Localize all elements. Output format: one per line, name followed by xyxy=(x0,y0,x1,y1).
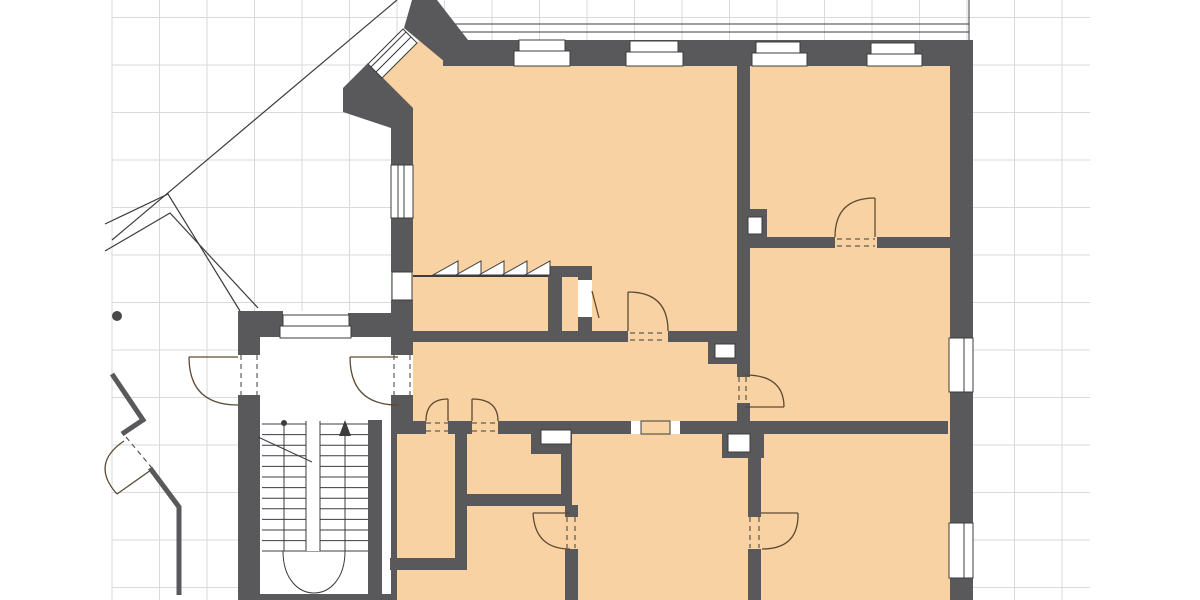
wall-corridor-top-left xyxy=(411,331,628,342)
entry-step-inner xyxy=(280,326,351,338)
wall-bottommid-right-2 xyxy=(748,549,761,600)
floor-plan-viewport xyxy=(0,0,1200,600)
wall-porch-left xyxy=(238,311,260,596)
zigzag-wall-upper xyxy=(112,374,143,434)
wall-bottommid-left-1 xyxy=(565,505,578,517)
wall-corridor-bottom-2 xyxy=(448,421,472,434)
window-top-2-outer xyxy=(630,41,678,52)
wall-left-1 xyxy=(391,128,413,165)
wall-bottommid-left-2 xyxy=(565,549,578,600)
wall-closet-right-1 xyxy=(578,266,592,280)
passage-opening-fill xyxy=(641,421,670,434)
window-top-2-inner xyxy=(626,52,683,66)
passage-jamb-left xyxy=(631,421,641,434)
shaft-lower-mid-inner xyxy=(541,430,571,444)
wall-left-thin xyxy=(391,421,397,600)
stair-stringer xyxy=(306,421,320,551)
wall-topright-room-bottom-2 xyxy=(877,237,950,248)
wall-stairwell-bottom xyxy=(238,594,393,600)
door-dash xyxy=(126,437,152,468)
wall-corridor-bottom-6 xyxy=(764,421,948,434)
floor-plan-svg xyxy=(0,0,1200,600)
shaft-top-right-inner xyxy=(748,217,762,234)
window-top-1-outer xyxy=(519,40,565,51)
wall-right xyxy=(950,40,973,600)
window-top-3-inner xyxy=(752,53,807,66)
wall-corridor-bottom-4 xyxy=(680,421,723,434)
wall-stairwell-right xyxy=(368,420,382,600)
wall-roomA-bottom xyxy=(390,558,467,570)
door-leaf xyxy=(117,470,151,494)
wall-roomA-right xyxy=(455,433,467,560)
window-top-1-inner xyxy=(514,51,570,66)
gable-outline-outer xyxy=(105,194,240,311)
window-left-1 xyxy=(391,165,413,218)
wall-bottom-horizontal xyxy=(465,494,572,506)
window-right-1 xyxy=(949,338,973,392)
layer-site-walls xyxy=(112,311,179,595)
closet-right-opening xyxy=(578,280,592,317)
site-column-dot xyxy=(112,311,122,321)
window-top-3-outer xyxy=(756,42,800,53)
door-arc xyxy=(105,441,124,494)
wall-corridor-bottom-1 xyxy=(391,421,426,434)
entry-step-outer xyxy=(283,315,349,326)
passage-jamb-right xyxy=(670,421,680,434)
window-top-4-inner xyxy=(867,54,922,66)
shaft-lower-right-inner xyxy=(728,434,750,452)
wall-porch-top-right xyxy=(348,313,392,337)
wall-closet-right-2 xyxy=(578,317,592,333)
window-top-4-outer xyxy=(871,43,915,54)
wall-mid-vertical-1 xyxy=(737,64,750,211)
window-left-2 xyxy=(392,272,412,300)
wall-left-3 xyxy=(391,300,413,355)
layer-entry-steps xyxy=(280,315,351,338)
wall-left-2 xyxy=(391,218,413,272)
zigzag-wall-lower xyxy=(150,468,179,595)
wall-left-4 xyxy=(391,395,413,421)
window-right-2 xyxy=(949,523,973,578)
shaft-corridor-inner xyxy=(715,344,735,358)
wall-bottom-connector xyxy=(561,450,572,494)
